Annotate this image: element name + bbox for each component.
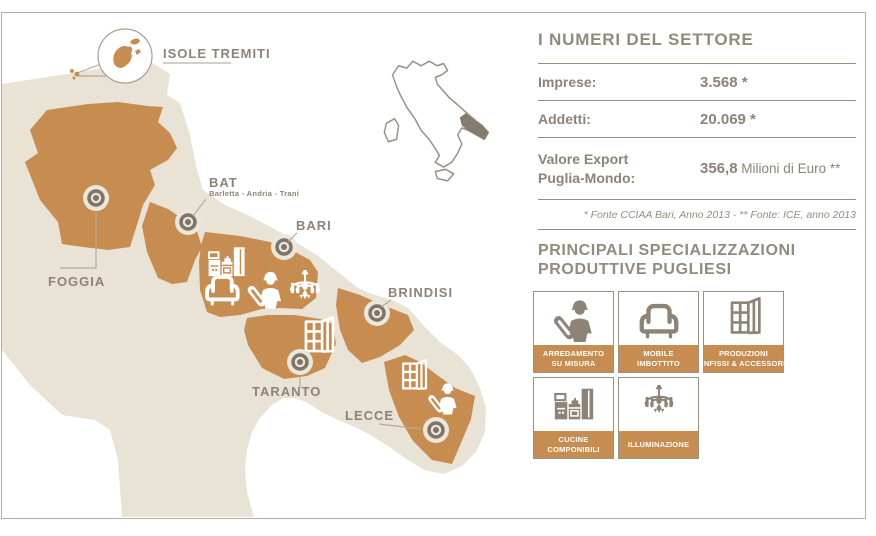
- stat-label: Valore Export Puglia-Mondo:: [538, 150, 700, 186]
- kitchen-icon: [554, 388, 592, 419]
- stat-row-addetti: Addetti: 20.069 *: [538, 100, 856, 137]
- stat-label: Imprese:: [538, 73, 700, 91]
- card-cucine-componibili: CUCINE COMPONIBILI: [533, 377, 614, 459]
- chandelier-icon: [645, 385, 672, 413]
- card-label: ARREDAMENTO SU MISURA: [534, 345, 613, 372]
- label-foggia: FOGGIA: [48, 274, 105, 289]
- label-brindisi: BRINDISI: [388, 285, 453, 300]
- sardinia-outline: [384, 119, 398, 142]
- card-mobile-imbottito: MOBILE IMBOTTITO: [618, 291, 699, 373]
- stat-row-imprese: Imprese: 3.568 *: [538, 63, 856, 100]
- stat-value: 356,8 Milioni di Euro **: [700, 160, 840, 177]
- label-bari: BARI: [296, 218, 332, 233]
- label-bat: BAT: [209, 175, 238, 190]
- marker-lecce: [423, 417, 449, 443]
- marker-bat: [175, 209, 201, 235]
- label-taranto: TARANTO: [252, 384, 321, 399]
- card-label: ILLUMINAZIONE: [619, 431, 698, 458]
- card-label: CUCINE COMPONIBILI: [534, 431, 613, 458]
- source-footnote: * Fonte CCIAA Bari, Anno 2013 - ** Fonte…: [584, 209, 856, 221]
- card-produzioni-infissi: PRODUZIONI INFISSI & ACCESSORI: [703, 291, 784, 373]
- stat-value: 3.568 *: [700, 74, 748, 91]
- label-bat-sub: Barletta - Andria - Trani: [209, 189, 299, 198]
- marker-bari: [271, 234, 297, 260]
- italy-outline: [392, 61, 488, 167]
- label-isole-tremiti: ISOLE TREMITI: [163, 46, 271, 61]
- specialization-cards: ARREDAMENTO SU MISURA MOBILE IMBOTTITO P…: [533, 291, 856, 459]
- footnote-row: * Fonte CCIAA Bari, Anno 2013 - ** Fonte…: [538, 199, 856, 230]
- marker-taranto: [287, 349, 313, 375]
- card-arredamento-su-misura: ARREDAMENTO SU MISURA: [533, 291, 614, 373]
- worker-blueprint-icon: [552, 300, 592, 342]
- label-lecce: LECCE: [345, 408, 394, 423]
- stat-value: 20.069 *: [700, 111, 756, 128]
- window-icon: [732, 298, 759, 333]
- card-label: PRODUZIONI INFISSI & ACCESSORI: [704, 345, 783, 372]
- puglia-highlight: [460, 113, 489, 139]
- card-illuminazione: ILLUMINAZIONE: [618, 377, 699, 459]
- stat-row-valore-export: Valore Export Puglia-Mondo: 356,8 Milion…: [538, 137, 856, 198]
- card-label: MOBILE IMBOTTITO: [619, 345, 698, 372]
- italy-minimap: [368, 52, 498, 187]
- panel-title: I NUMERI DEL SETTORE: [538, 30, 856, 50]
- marker-foggia: [83, 185, 109, 211]
- armchair-icon: [641, 306, 676, 337]
- stats-panel: I NUMERI DEL SETTORE Imprese: 3.568 * Ad…: [538, 30, 856, 463]
- sicily-outline: [435, 169, 453, 181]
- specializations-title: PRINCIPALI SPECIALIZZAZIONI PRODUTTIVE P…: [538, 241, 856, 279]
- stat-label: Addetti:: [538, 110, 700, 128]
